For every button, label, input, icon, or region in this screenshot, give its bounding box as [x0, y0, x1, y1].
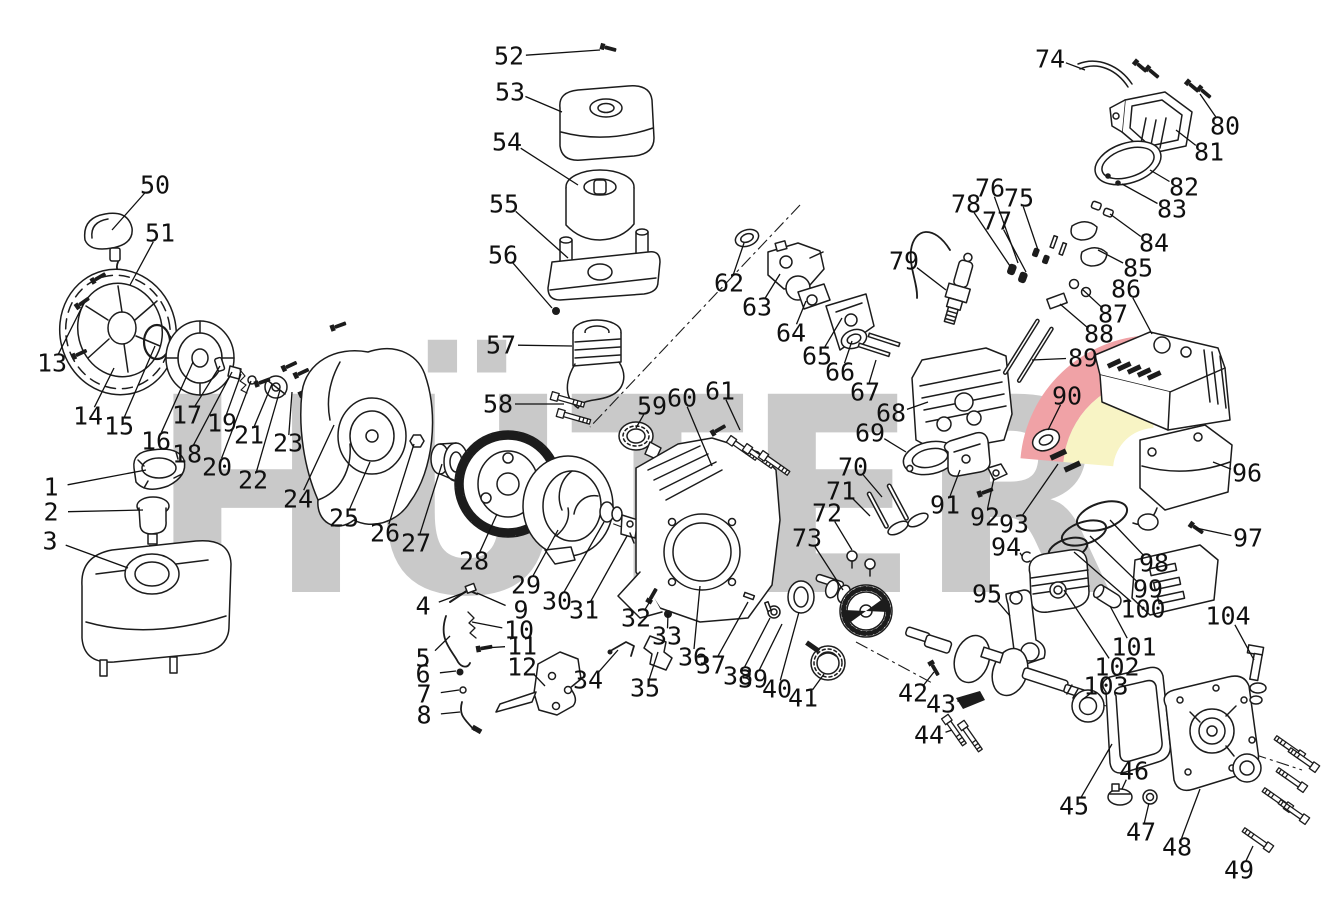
part-number-23: 23: [273, 429, 303, 458]
part-number-4: 4: [415, 592, 430, 621]
air-filter-screw: [599, 43, 617, 53]
part-number-2: 2: [43, 498, 58, 527]
part-number-69: 69: [855, 419, 885, 448]
part-number-90: 90: [1052, 382, 1082, 411]
part-number-78: 78: [951, 190, 981, 219]
leader-line-82: [1150, 170, 1170, 182]
part-number-73: 73: [792, 524, 822, 553]
breather-valve-drawing: [1108, 784, 1132, 805]
tappet-drawing: [1070, 280, 1079, 289]
part-number-104: 104: [1205, 602, 1250, 631]
part-number-98: 98: [1139, 549, 1169, 578]
leader-line-57: [518, 345, 572, 346]
part-number-79: 79: [889, 247, 919, 276]
part-number-94: 94: [991, 533, 1021, 562]
leader-line-56: [513, 263, 552, 308]
leader-line-8: [441, 712, 460, 714]
spark-plug-drawing: [939, 251, 980, 326]
part-number-95: 95: [972, 580, 1002, 609]
leader-line-1: [68, 470, 146, 485]
part-number-29: 29: [511, 571, 541, 600]
part-number-18: 18: [172, 440, 202, 469]
part-number-41: 41: [788, 684, 818, 713]
leader-line-79: [917, 268, 946, 290]
leader-line-84: [1110, 214, 1141, 237]
part-number-97: 97: [1233, 524, 1263, 553]
part-number-81: 81: [1194, 138, 1224, 167]
part-number-54: 54: [492, 128, 522, 157]
leader-line-55: [516, 211, 568, 258]
part-number-47: 47: [1126, 818, 1156, 847]
part-number-53: 53: [495, 78, 525, 107]
part-number-8: 8: [416, 701, 431, 730]
part-number-15: 15: [104, 412, 134, 441]
part-number-58: 58: [483, 390, 513, 419]
valve-train-hardware-drawing: [1006, 236, 1066, 284]
part-number-50: 50: [140, 171, 170, 200]
part-number-19: 19: [207, 409, 237, 438]
part-number-57: 57: [486, 331, 516, 360]
part-number-16: 16: [141, 427, 171, 456]
leader-line-83: [1122, 184, 1158, 204]
leader-line-75: [1023, 207, 1038, 250]
part-number-42: 42: [898, 679, 928, 708]
oil-seal-drawing: [788, 581, 814, 613]
part-number-62: 62: [714, 269, 744, 298]
rocker-arms-drawing: [1071, 222, 1107, 266]
part-number-52: 52: [494, 42, 524, 71]
part-number-24: 24: [283, 485, 313, 514]
part-number-14: 14: [73, 402, 103, 431]
part-number-3: 3: [42, 527, 57, 556]
part-number-51: 51: [145, 219, 175, 248]
engine-exploded-diagram: HÜTER: [0, 0, 1339, 912]
leader-line-88: [1060, 304, 1087, 327]
part-number-61: 61: [705, 377, 735, 406]
part-number-92: 92: [970, 503, 1000, 532]
leader-line-45: [1081, 744, 1112, 797]
part-number-30: 30: [542, 587, 572, 616]
cover-bearing-drawing: [1240, 761, 1254, 775]
leader-line-6: [440, 671, 456, 673]
nut-drawing: [410, 435, 424, 447]
cylinder-head-drawing: [912, 348, 1012, 452]
part-number-48: 48: [1162, 833, 1192, 862]
leader-line-7: [441, 690, 459, 693]
exploded-parts-diagram-page: HÜTER: [0, 0, 1339, 912]
part-number-35: 35: [630, 674, 660, 703]
part-number-83: 83: [1157, 195, 1187, 224]
kill-switch-wire-drawing: [1078, 61, 1132, 87]
leader-line-52: [526, 50, 600, 55]
part-number-59: 59: [637, 392, 667, 421]
spacer-drawing: [612, 507, 622, 521]
leader-line-48: [1182, 789, 1200, 838]
part-number-31: 31: [569, 596, 599, 625]
part-number-45: 45: [1059, 792, 1089, 821]
part-number-43: 43: [926, 690, 956, 719]
part-number-17: 17: [172, 401, 202, 430]
part-number-60: 60: [667, 384, 697, 413]
crank-screw: [927, 659, 941, 676]
part-number-100: 100: [1120, 595, 1165, 624]
part-number-20: 20: [202, 453, 232, 482]
leader-line-53: [525, 97, 562, 113]
piston-drawing: [1029, 550, 1089, 613]
part-number-25: 25: [329, 504, 359, 533]
part-number-37: 37: [696, 651, 726, 680]
intake-gasket-drawing: [733, 226, 761, 249]
starter-pulley-drawing: [166, 321, 234, 395]
part-number-80: 80: [1210, 112, 1240, 141]
part-number-55: 55: [489, 190, 519, 219]
part-number-89: 89: [1068, 344, 1098, 373]
leader-line-44: [946, 730, 953, 732]
part-number-91: 91: [930, 491, 960, 520]
part-number-63: 63: [742, 293, 772, 322]
part-number-21: 21: [234, 421, 264, 450]
air-filter-element-drawing: [566, 170, 634, 240]
muffler-drawing: [1133, 425, 1232, 530]
guide-plate-drawing: [1047, 293, 1067, 309]
part-number-44: 44: [914, 721, 944, 750]
part-number-103: 103: [1083, 672, 1128, 701]
part-number-46: 46: [1119, 757, 1149, 786]
part-number-96: 96: [1232, 459, 1262, 488]
part-number-32: 32: [621, 604, 651, 633]
part-number-27: 27: [401, 529, 431, 558]
seal-washer-drawing: [1147, 794, 1154, 801]
grommet-drawing: [552, 307, 560, 315]
leader-line-2: [68, 510, 143, 512]
woodruff-key-drawing: [956, 691, 985, 709]
part-number-26: 26: [370, 519, 400, 548]
part-number-74: 74: [1035, 45, 1065, 74]
part-number-12: 12: [507, 653, 537, 682]
air-filter-cover-drawing: [560, 86, 654, 160]
leader-line-74: [1066, 63, 1085, 70]
part-number-56: 56: [488, 241, 518, 270]
part-number-34: 34: [573, 666, 603, 695]
part-number-49: 49: [1224, 856, 1254, 885]
part-number-22: 22: [238, 466, 268, 495]
part-number-28: 28: [459, 547, 489, 576]
part-number-13: 13: [37, 349, 67, 378]
